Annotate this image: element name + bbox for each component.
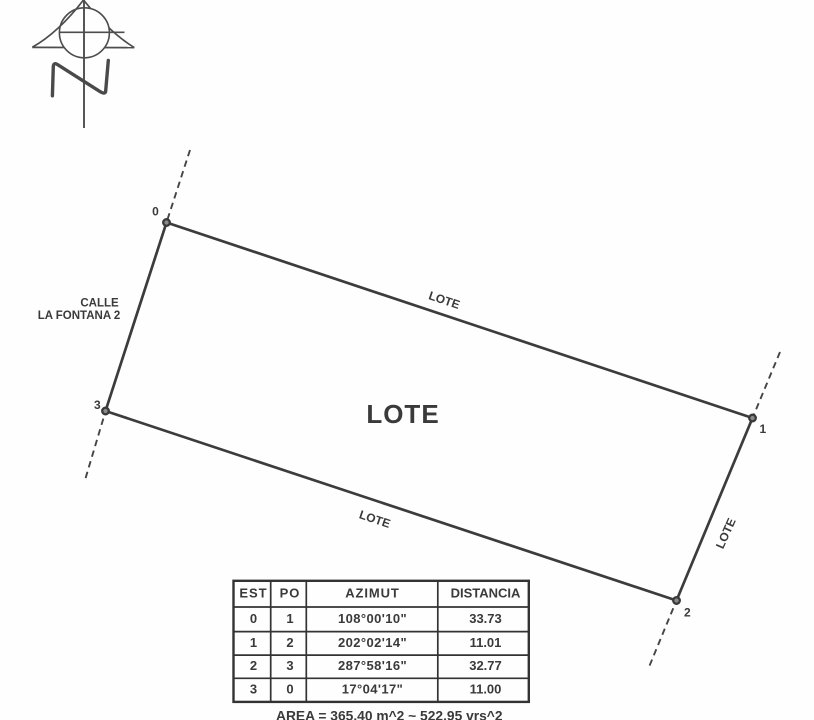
svg-text:17°04'17": 17°04'17" (342, 682, 403, 697)
svg-text:287°58'16": 287°58'16" (338, 658, 407, 673)
svg-text:11.00: 11.00 (470, 682, 502, 697)
svg-text:AZIMUT: AZIMUT (345, 585, 400, 600)
svg-text:1: 1 (286, 611, 293, 626)
svg-text:DISTANCIA: DISTANCIA (451, 585, 521, 600)
svg-text:1: 1 (250, 635, 257, 650)
svg-text:0: 0 (250, 611, 257, 626)
svg-text:202°02'14": 202°02'14" (338, 635, 407, 650)
svg-text:CALLE: CALLE (80, 297, 119, 309)
svg-text:3: 3 (94, 398, 101, 412)
svg-text:1: 1 (759, 422, 766, 436)
svg-text:AREA = 365.40 m^2 ~ 522.95 vrs: AREA = 365.40 m^2 ~ 522.95 vrs^2 (276, 708, 503, 720)
svg-text:PO: PO (280, 585, 301, 600)
svg-text:0: 0 (152, 205, 159, 219)
svg-text:2: 2 (250, 658, 257, 673)
svg-text:LOTE: LOTE (427, 288, 462, 311)
svg-text:LOTE: LOTE (357, 507, 392, 530)
svg-text:LOTE: LOTE (713, 516, 739, 551)
svg-text:LOTE: LOTE (366, 399, 439, 429)
svg-text:3: 3 (286, 658, 293, 673)
svg-text:0: 0 (286, 682, 293, 697)
svg-text:3: 3 (250, 682, 257, 697)
svg-text:33.73: 33.73 (469, 611, 502, 626)
svg-text:LA FONTANA 2: LA FONTANA 2 (38, 310, 121, 322)
svg-text:32.77: 32.77 (469, 658, 502, 673)
svg-text:2: 2 (684, 605, 691, 619)
svg-text:EST: EST (239, 585, 267, 600)
svg-text:108°00'10": 108°00'10" (338, 611, 407, 626)
svg-text:11.01: 11.01 (470, 635, 502, 650)
svg-text:2: 2 (286, 635, 293, 650)
